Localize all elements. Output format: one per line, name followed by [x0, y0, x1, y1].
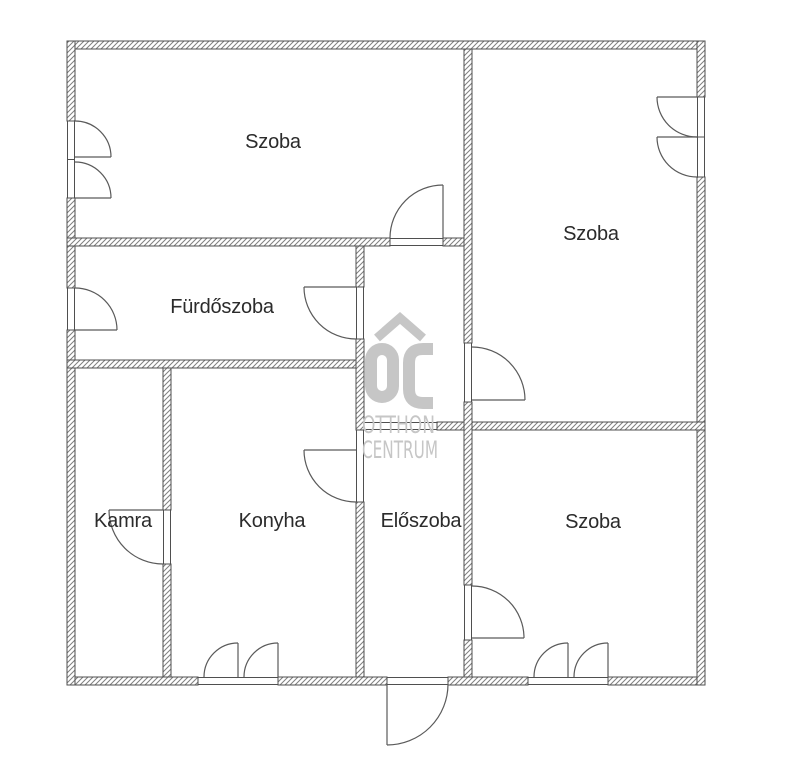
wall-h1-segment	[67, 238, 390, 246]
watermark-line1: OTTHON	[362, 411, 435, 439]
wall-bottom-segment	[278, 677, 387, 685]
room-label-eloszoba: Előszoba	[381, 510, 463, 532]
window-top-left-room	[75, 121, 111, 198]
oc-logo-icon	[371, 349, 433, 403]
wall-v1-segment	[356, 502, 364, 677]
double-door-bottom-right-room	[534, 643, 608, 677]
room-label-szoba-top-right: Szoba	[563, 223, 620, 245]
door-bathroom	[304, 287, 356, 339]
wall-right-segment	[697, 177, 705, 685]
wall-v3-segment	[163, 564, 171, 677]
room-label-furdoszoba: Fürdőszoba	[170, 296, 275, 318]
floorplan: OTTHON CENTRUM Szoba Szoba Fürdőszoba Ka…	[0, 0, 800, 774]
door-top-left-room	[390, 185, 443, 238]
door-kitchen	[304, 450, 356, 502]
wall-v2-segment	[464, 402, 472, 585]
oc-chevron-icon	[377, 318, 423, 338]
wall-v2-segment	[464, 640, 472, 677]
floorplan-drawing: OTTHON CENTRUM Szoba Szoba Fürdőszoba Ka…	[0, 0, 800, 774]
room-label-szoba-top-left: Szoba	[245, 131, 302, 153]
double-door-kitchen	[204, 643, 278, 677]
wall-bottom-segment	[67, 677, 198, 685]
window-swings	[75, 97, 697, 330]
wall-h2	[67, 360, 364, 368]
wall-v2-segment	[464, 49, 472, 343]
wall-bottom-segment	[448, 677, 528, 685]
door-top-right-room	[472, 347, 525, 400]
room-label-szoba-bottom-right: Szoba	[565, 511, 622, 533]
wall-left-segment	[67, 330, 75, 685]
wall-h1-segment	[443, 238, 464, 246]
watermark-line2: CENTRUM	[362, 436, 438, 464]
window-top-right-room	[657, 97, 697, 177]
wall-h3	[437, 422, 705, 430]
window-bathroom	[75, 288, 117, 330]
wall-top	[67, 41, 705, 49]
room-label-konyha: Konyha	[239, 510, 307, 532]
room-label-kamra: Kamra	[94, 510, 153, 532]
wall-left-segment	[67, 41, 75, 121]
wall-bottom-segment	[608, 677, 705, 685]
door-bottom-right-room	[472, 586, 524, 638]
watermark: OTTHON CENTRUM	[362, 318, 438, 464]
wall-v3-segment	[163, 368, 171, 510]
interior-walls	[67, 49, 705, 677]
door-entrance	[387, 684, 448, 745]
wall-right-segment	[697, 41, 705, 97]
wall-v1-segment	[356, 246, 364, 287]
room-labels: Szoba Szoba Fürdőszoba Kamra Konyha Elős…	[94, 131, 622, 533]
